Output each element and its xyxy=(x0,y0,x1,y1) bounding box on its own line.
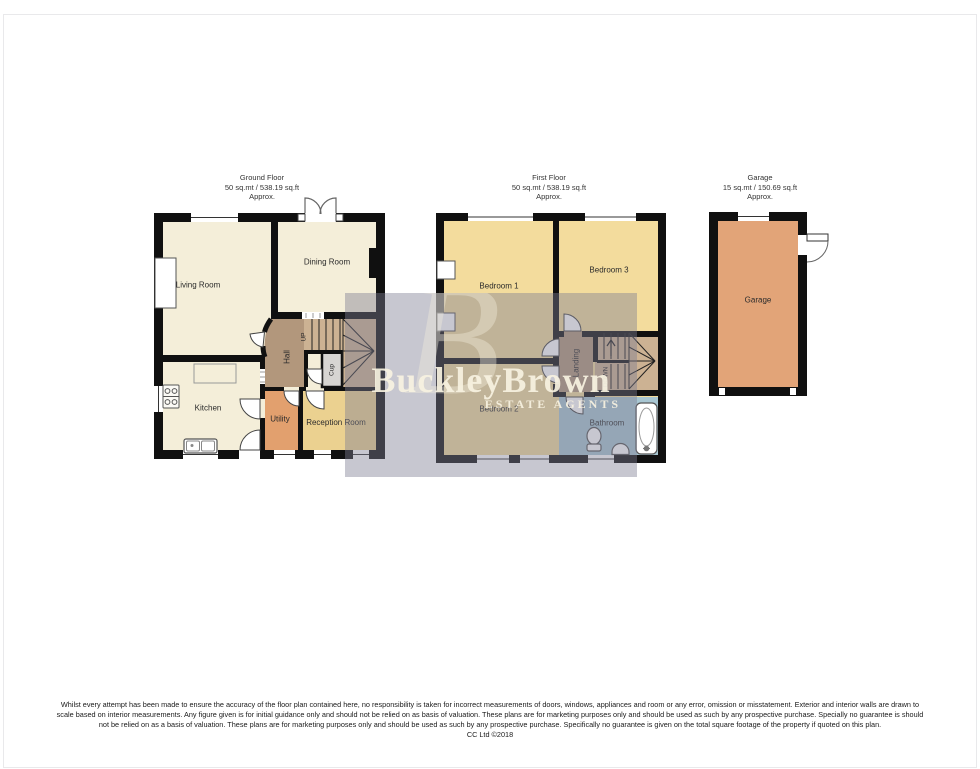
disclaimer: Whilst every attempt has been made to en… xyxy=(0,700,980,740)
chimney-recess xyxy=(437,261,455,279)
garage-approx: Approx. xyxy=(723,192,797,202)
floorplan-page: Ground Floor 50 sq.mt / 538.19 sq.ft App… xyxy=(0,0,980,769)
room-label-bedroom3: Bedroom 3 xyxy=(589,266,628,275)
garage-post xyxy=(790,388,796,395)
agency-watermark: B BuckleyBrown ESTATE AGENTS xyxy=(345,293,637,477)
disclaimer-line-3: not be relied on as a basis of valuation… xyxy=(0,720,980,730)
disclaimer-line-1: Whilst every attempt has been made to en… xyxy=(0,700,980,710)
stairs-label-up: UP xyxy=(301,332,308,341)
first-floor-title: First Floor xyxy=(512,173,586,183)
garage-area: 15 sq.mt / 150.69 sq.ft xyxy=(723,183,797,193)
ground-floor-area: 50 sq.mt / 538.19 sq.ft xyxy=(225,183,299,193)
first-floor-approx: Approx. xyxy=(512,192,586,202)
garage-header: Garage 15 sq.mt / 150.69 sq.ft Approx. xyxy=(723,173,797,202)
room-label-kitchen: Kitchen xyxy=(195,404,222,413)
first-floor-header: First Floor 50 sq.mt / 538.19 sq.ft Appr… xyxy=(512,173,586,202)
garage-post xyxy=(719,388,725,395)
watermark-brand: BuckleyBrown xyxy=(345,359,637,401)
room-label-living: Living Room xyxy=(176,281,220,290)
room-label-bedroom1: Bedroom 1 xyxy=(479,282,518,291)
copyright-line: CC Ltd ©2018 xyxy=(0,730,980,740)
ground-floor-title: Ground Floor xyxy=(225,173,299,183)
first-floor-area: 50 sq.mt / 538.19 sq.ft xyxy=(512,183,586,193)
room-label-garage: Garage xyxy=(745,296,772,305)
ground-floor-approx: Approx. xyxy=(225,192,299,202)
room-label-hall: Hall xyxy=(283,350,292,364)
watermark-tagline: ESTATE AGENTS xyxy=(485,397,621,412)
ground-floor-header: Ground Floor 50 sq.mt / 538.19 sq.ft App… xyxy=(225,173,299,202)
chimney-recess xyxy=(155,258,176,308)
garage-door-swing xyxy=(807,241,828,262)
room-label-dining: Dining Room xyxy=(304,258,350,267)
garage-title: Garage xyxy=(723,173,797,183)
room-label-utility: Utility xyxy=(270,415,290,424)
garage-door-opening xyxy=(798,235,807,255)
garage-door-leaf xyxy=(807,234,828,241)
room-label-cup: Cup xyxy=(329,364,336,376)
disclaimer-line-2: scale based on interior measurements. An… xyxy=(0,710,980,720)
